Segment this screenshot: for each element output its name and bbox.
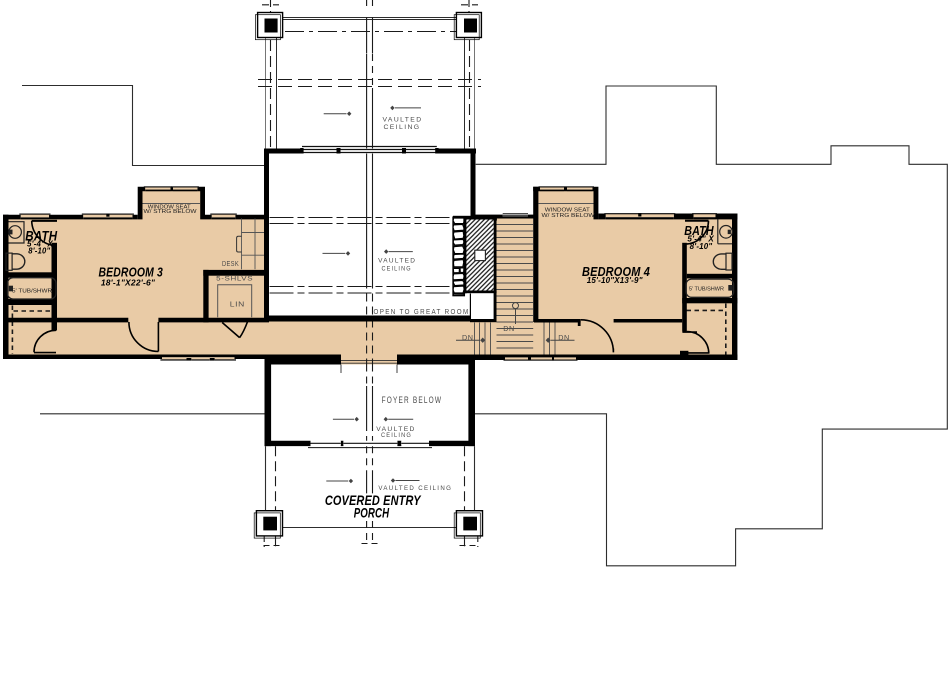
svg-text:VAULTED: VAULTED [378, 258, 416, 265]
svg-text:18'-1"X22'-6": 18'-1"X22'-6" [101, 278, 156, 288]
svg-text:5' TUB/SHWR: 5' TUB/SHWR [12, 288, 52, 294]
svg-text:DN: DN [503, 324, 514, 333]
svg-text:FOYER BELOW: FOYER BELOW [382, 395, 443, 405]
svg-text:CEILING: CEILING [381, 432, 412, 439]
svg-text:PORCH: PORCH [354, 505, 390, 521]
svg-text:8'-10": 8'-10" [690, 242, 713, 251]
svg-text:LIN: LIN [230, 299, 245, 308]
svg-text:CEILING: CEILING [384, 124, 421, 131]
svg-text:DESK: DESK [222, 261, 239, 268]
svg-text:5' TUB/SHWR: 5' TUB/SHWR [689, 286, 724, 292]
svg-text:OPEN TO GREAT ROOM: OPEN TO GREAT ROOM [374, 307, 470, 316]
svg-text:CEILING: CEILING [382, 266, 412, 273]
svg-text:8'-10": 8'-10" [28, 247, 50, 256]
svg-text:W/ STRG BELOW: W/ STRG BELOW [542, 213, 596, 219]
svg-text:15'-10"X13'-9": 15'-10"X13'-9" [587, 275, 644, 285]
svg-text:DN: DN [462, 333, 473, 342]
svg-text:VAULTED: VAULTED [383, 116, 423, 123]
svg-text:5-SHLVS: 5-SHLVS [216, 276, 253, 283]
svg-text:W/ STRG BELOW: W/ STRG BELOW [144, 209, 198, 215]
svg-text:DN: DN [558, 333, 569, 342]
